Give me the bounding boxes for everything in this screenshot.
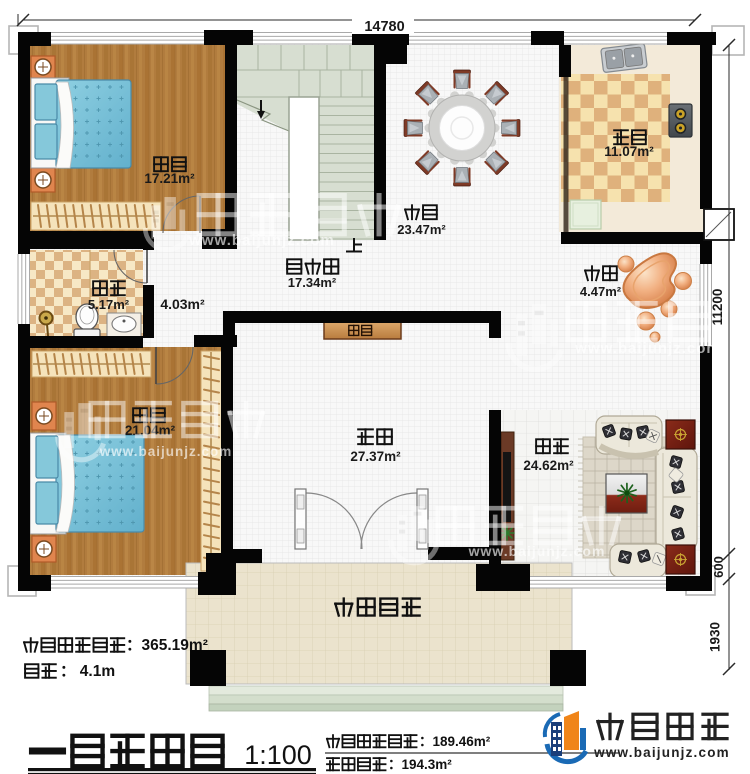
svg-text:27.37m²: 27.37m² (350, 449, 401, 464)
svg-text:：194.3m²: ：194.3m² (388, 757, 452, 772)
svg-text:14780: 14780 (364, 19, 404, 35)
svg-text:www.baijunjz.com: www.baijunjz.com (574, 340, 720, 357)
svg-text:www.baijunjz.com: www.baijunjz.com (188, 232, 334, 249)
svg-text:24.62m²: 24.62m² (523, 458, 574, 473)
svg-text:17.21m²: 17.21m² (144, 171, 195, 186)
svg-text:1930: 1930 (708, 622, 723, 652)
svg-text:www.baijunjz.com: www.baijunjz.com (468, 543, 606, 559)
svg-text:www.baijunjz.com: www.baijunjz.com (593, 745, 730, 760)
svg-text:600: 600 (711, 556, 726, 578)
svg-text:： 4.1m: ： 4.1m (60, 663, 115, 680)
svg-text:11200: 11200 (710, 289, 725, 326)
svg-text:5.17m²: 5.17m² (88, 297, 130, 312)
svg-text:23.47m²: 23.47m² (397, 222, 446, 237)
svg-text:4.47m²: 4.47m² (580, 284, 622, 299)
svg-text:：365.19m²: ：365.19m² (126, 637, 208, 654)
svg-text:4.03m²: 4.03m² (160, 296, 205, 312)
svg-text:11.07m²: 11.07m² (604, 144, 654, 159)
svg-text:：189.46m²: ：189.46m² (419, 734, 491, 749)
svg-text:1:100: 1:100 (244, 740, 312, 770)
svg-text:17.34m²: 17.34m² (288, 275, 337, 290)
svg-text:www.baijunjz.com: www.baijunjz.com (99, 444, 233, 459)
